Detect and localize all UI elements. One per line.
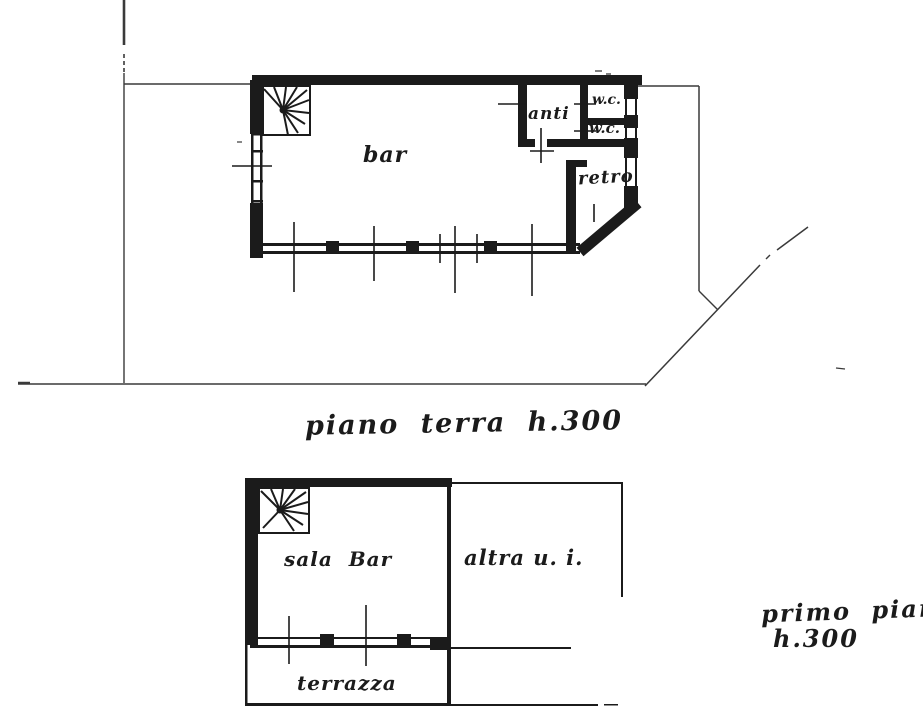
- room-label-bar: bar: [363, 144, 407, 166]
- wall-chamfer: [577, 199, 642, 256]
- storefront-wall: [250, 634, 448, 650]
- mullion: [430, 639, 448, 650]
- floor-plan-sheet: bar anti w.c. w.c. retro piano terra h.3…: [0, 0, 923, 721]
- room-label-terrazza: terrazza: [297, 673, 397, 693]
- wall-left-lower: [250, 203, 263, 258]
- wall-left-upper: [250, 80, 263, 134]
- spiral-staircase-icon: [263, 86, 310, 135]
- wall-top: [250, 478, 452, 487]
- room-label-altra-ui: altra u. i.: [464, 547, 583, 568]
- room-label-anti: anti: [528, 106, 570, 123]
- room-label-retro: retro: [578, 168, 635, 189]
- storefront-wall: [250, 241, 580, 254]
- wall-left: [245, 478, 258, 645]
- ground-floor-caption: piano terra h.300: [305, 407, 623, 440]
- spiral-staircase-icon: [259, 488, 309, 533]
- mullion: [326, 241, 339, 253]
- first-floor-caption-line1: primo piano: [761, 596, 923, 627]
- wall-top: [252, 75, 642, 85]
- mullion: [484, 241, 497, 253]
- left-window: [251, 132, 263, 205]
- mullion: [397, 634, 411, 647]
- room-label-sala-bar: sala Bar: [284, 549, 392, 569]
- room-label-wc-top: w.c.: [592, 93, 621, 107]
- lot-boundary-diagonal-line: [645, 227, 808, 386]
- lot-boundary-bottom-line: [18, 383, 646, 384]
- mullion: [320, 634, 334, 647]
- first-floor-caption-line2: h.300: [773, 627, 859, 651]
- lot-boundary-right-line: [699, 86, 718, 310]
- room-label-wc-bottom: w.c.: [589, 121, 620, 136]
- mullion: [406, 241, 419, 253]
- divider-wall: [447, 480, 451, 706]
